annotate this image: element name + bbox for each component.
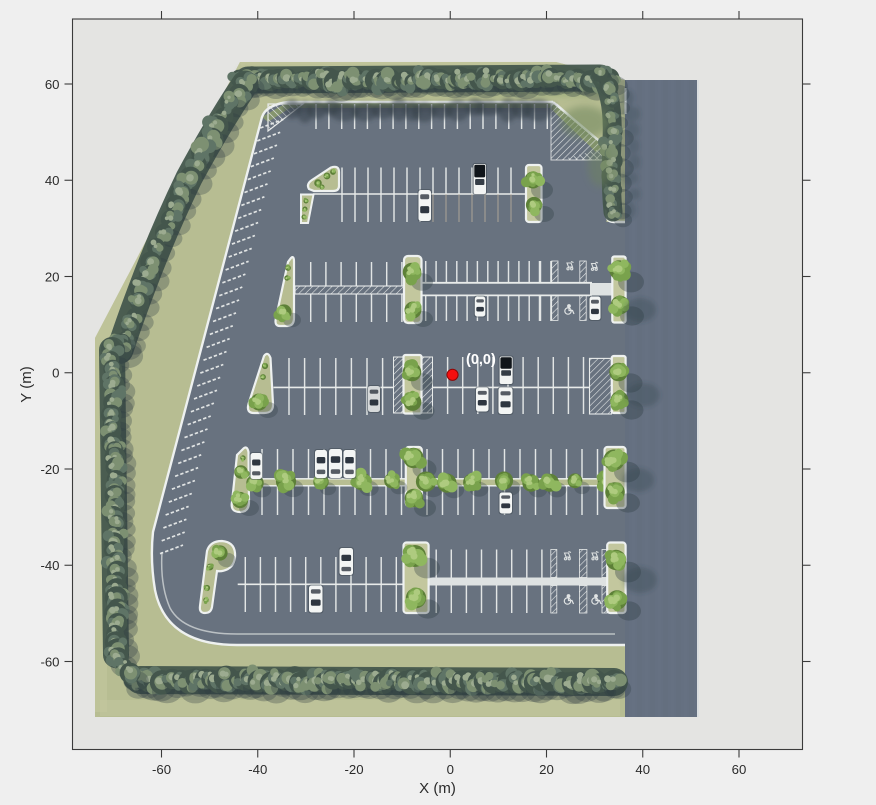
svg-text:-40: -40 — [248, 762, 267, 777]
svg-text:X (m): X (m) — [419, 780, 456, 797]
svg-text:0: 0 — [447, 762, 454, 777]
svg-text:40: 40 — [635, 762, 650, 777]
svg-text:-20: -20 — [40, 462, 59, 477]
svg-text:60: 60 — [45, 77, 60, 92]
svg-text:(0,0): (0,0) — [466, 352, 496, 368]
svg-text:-60: -60 — [152, 762, 171, 777]
svg-text:60: 60 — [732, 762, 747, 777]
svg-text:-20: -20 — [344, 762, 363, 777]
svg-text:0: 0 — [52, 366, 59, 381]
svg-text:-40: -40 — [40, 558, 59, 573]
svg-text:20: 20 — [539, 762, 554, 777]
svg-text:40: 40 — [45, 173, 60, 188]
svg-text:Y (m): Y (m) — [18, 366, 35, 402]
svg-text:-60: -60 — [40, 654, 59, 669]
svg-text:20: 20 — [45, 269, 60, 284]
